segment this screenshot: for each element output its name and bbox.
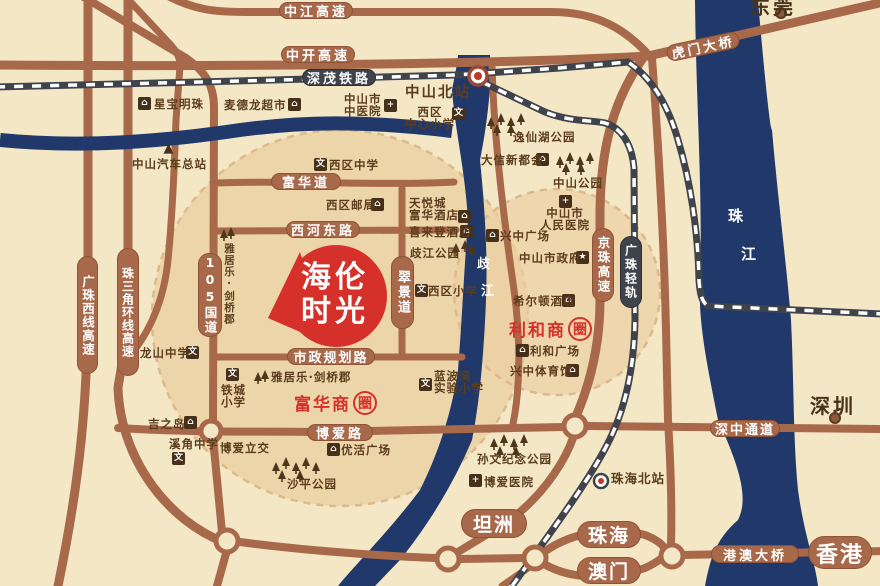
zhujiang-river (695, 0, 818, 586)
poi-xingzhong-tiyuguan: 兴中体育馆 (510, 365, 573, 377)
bus-station-icon: ▲ (162, 142, 175, 155)
junction-ring-zhuhai-aomen (524, 547, 546, 569)
poi-xiqu-zhongxin-line2: 中心小学 (405, 118, 455, 130)
lihe-zone-circled-char: 圈 (568, 317, 592, 341)
poi-longshan: 龙山中学 (140, 347, 190, 359)
poi-zhongyiyuan-line2: 中医院 (344, 105, 382, 117)
poi-shaping: 沙平公园 (287, 478, 337, 490)
poi-sunwen: 孙文纪念公园 (477, 453, 552, 465)
school-icon: 文 (172, 452, 185, 465)
fuhua-zone-circled-char: 圈 (353, 391, 377, 415)
road-label-shizheng: 市政规划路 (287, 348, 375, 365)
poi-zhongshan-gongyuan: 中山公园 (553, 177, 603, 189)
poi-tiecheng: 铁城 小学 (221, 384, 246, 408)
junction-ring-tanzhou (437, 548, 459, 570)
building-icon: ⌂ (486, 229, 499, 242)
road-label-gangao-bridge: 港澳大桥 (711, 545, 799, 563)
poi-xingbao: 星宝明珠 (154, 98, 204, 110)
station-label-zhongshanbei: 中山北站 (405, 87, 471, 99)
poi-xilaideng: 喜来登酒店 (409, 226, 472, 238)
road-label-shenzhong: 深中通道 (710, 420, 780, 437)
qijiang-river-label-ch2: 江 (481, 280, 494, 299)
city-pill-xianggang: 香港 (808, 536, 872, 569)
poi-jizhidao: 吉之岛 (148, 418, 186, 430)
road-label-fuhuadao: 富华道 (271, 173, 341, 190)
poi-zhongyiyuan: 中山市 中医院 (344, 93, 382, 117)
poi-daxin: 大信新都会 (481, 154, 544, 166)
city-pill-zhuhai: 珠海 (577, 521, 641, 548)
station-label-zhuhaibei: 珠海北站 (611, 473, 665, 485)
city-label-dongguan: 东莞 (750, 0, 796, 20)
hospital-icon: + (384, 99, 397, 112)
property-badge: 海伦 时光 (283, 261, 387, 329)
building-icon: ⌂ (184, 416, 197, 429)
junction-ring-bridge (661, 545, 683, 567)
building-icon: ⌂ (458, 210, 471, 223)
poi-xiqu-xiaoxue: 西区小学 (428, 285, 478, 297)
poi-lanbowan-line2: 实验小学 (434, 382, 484, 394)
building-icon: ⌂ (288, 98, 301, 111)
poi-boai-lijiao: 博爱立交 (220, 442, 270, 454)
shenzhong-exit-ring (564, 415, 586, 437)
school-icon: 文 (415, 284, 428, 297)
road-label-boailu: 博爱路 (307, 424, 373, 441)
building-icon: ⌂ (516, 344, 529, 357)
poi-renmin-line2: 人民医院 (540, 219, 590, 231)
building-icon: ⌂ (138, 97, 151, 110)
poi-renmin-yiyuan: 中山市 人民医院 (540, 207, 590, 231)
zhuhaibei-station-dot (598, 478, 604, 484)
building-icon: ⌂ (327, 443, 340, 456)
zhujiang-river-label-ch2: 江 (741, 243, 756, 264)
poi-xierdun: 希尔顿酒店 (513, 295, 576, 307)
road-label-cuijingdao: 翠景道 (391, 256, 414, 329)
poi-maidelong: 麦德龙超市 (224, 99, 287, 111)
poi-qijiang-gongyuan: 歧江公园 (410, 247, 460, 259)
zhujiang-river-label-ch1: 珠 (728, 205, 743, 226)
zhongshanbei-station-dot (474, 72, 482, 80)
railway-label-guangzhu-lightrail: 广珠轻轨 (620, 236, 642, 308)
qijiang-river-label-ch1: 歧 (477, 253, 490, 272)
poi-tianyue-line2: 富华酒店 (409, 209, 459, 221)
poi-yajule-horizontal: 雅居乐·剑桥郡 (271, 371, 351, 383)
junction-ring-sw (216, 530, 238, 552)
location-map: 海伦 时光 中江高速 中开高速 虎门大桥 富华道 西河东路 市政规划路 博爱路 … (0, 0, 880, 586)
poi-youhuo: 优活广场 (341, 444, 391, 456)
poi-tianyue: 天悦城 富华酒店 (409, 197, 459, 221)
lihe-zone-label: 利和商 圈 (509, 316, 592, 341)
poi-tiecheng-line2: 小学 (221, 396, 246, 408)
poi-lanbowan: 蓝波湾 实验小学 (434, 370, 484, 394)
railway-label-shenmao: 深茂铁路 (302, 69, 376, 86)
lihe-zone-text: 利和商 (509, 316, 566, 341)
fuhua-zone-label: 富华商 圈 (294, 390, 377, 415)
zhongjiang-expressway-road (168, 0, 646, 52)
poi-xiqu-zhongxin: 西区 中心小学 (405, 106, 455, 130)
ring-a-b-link (460, 558, 524, 559)
property-name-line1: 海伦 (283, 261, 387, 295)
poi-yajule-vertical: 雅居乐·剑桥郡 (223, 243, 235, 339)
poi-yixianhu: 逸仙湖公园 (513, 131, 576, 143)
zhongshan-park-trees (556, 152, 594, 175)
school-icon: 文 (314, 158, 327, 171)
property-name-line2: 时光 (283, 295, 387, 329)
poi-boai-yiyuan: 博爱医院 (484, 476, 534, 488)
road-label-guangzhuxi: 广珠西线高速 (77, 256, 98, 374)
road-label-zhongkai: 中开高速 (281, 46, 355, 63)
school-icon: 文 (226, 368, 239, 381)
road-label-guodao105: 105国道 (198, 253, 222, 337)
poi-qiche: 中山汽车总站 (132, 158, 207, 170)
road-label-xihedonglu: 西河东路 (286, 221, 360, 238)
road-label-jingzhu: 京珠高速 (592, 228, 614, 302)
poi-xijiao: 溪角中学 (169, 438, 219, 450)
poi-xiqu-zhongxue: 西区中学 (329, 159, 379, 171)
road-label-zhongjiang: 中江高速 (279, 2, 353, 19)
poi-xiqu-youju: 西区邮局 (326, 199, 376, 211)
poi-zhengfu: 中山市政府 (519, 252, 582, 264)
school-icon: 文 (419, 378, 432, 391)
poi-lihe-guangchang: 利和广场 (530, 345, 580, 357)
road-label-zhusanjiao: 珠三角环线高速 (117, 248, 139, 376)
city-pill-tanzhou: 坦洲 (461, 509, 527, 538)
hospital-icon: + (469, 474, 482, 487)
fuhua-zone-text: 富华商 (294, 390, 351, 415)
city-label-shenzhen: 深圳 (810, 390, 856, 419)
city-pill-aomen: 澳门 (577, 557, 641, 584)
